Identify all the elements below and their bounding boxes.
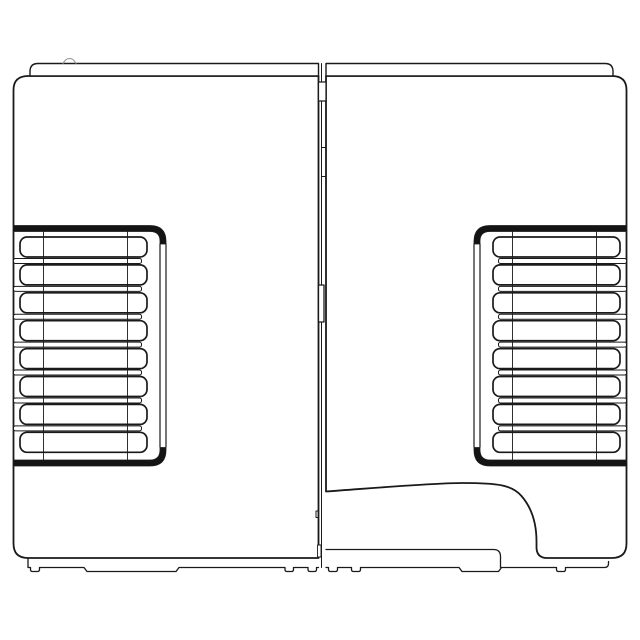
- left-grille-fin: [14, 286, 142, 291]
- seam-hinge-block: [319, 285, 325, 322]
- right-grille-fin: [499, 258, 627, 263]
- right-top-lid: [326, 64, 613, 77]
- left-grille-fin: [14, 258, 142, 263]
- left-grille-fin: [14, 370, 142, 375]
- left-grille-fin: [14, 314, 142, 319]
- drawing-stage: [0, 0, 640, 640]
- right-grille-fin: [499, 426, 627, 431]
- left-grille-fin: [14, 342, 142, 347]
- right-grille-fin: [499, 286, 627, 291]
- left-top-lid: [30, 64, 319, 77]
- left-grille-fin: [14, 398, 142, 403]
- seam-bottom-block: [318, 545, 322, 557]
- right-grille-fin: [499, 342, 627, 347]
- right-grille-fin: [499, 398, 627, 403]
- right-grille-fin: [499, 370, 627, 375]
- seam-top-latch-block: [319, 82, 327, 101]
- left-grille-fin: [14, 426, 142, 431]
- technical-drawing-canvas: [0, 0, 640, 640]
- right-grille-fin: [499, 314, 627, 319]
